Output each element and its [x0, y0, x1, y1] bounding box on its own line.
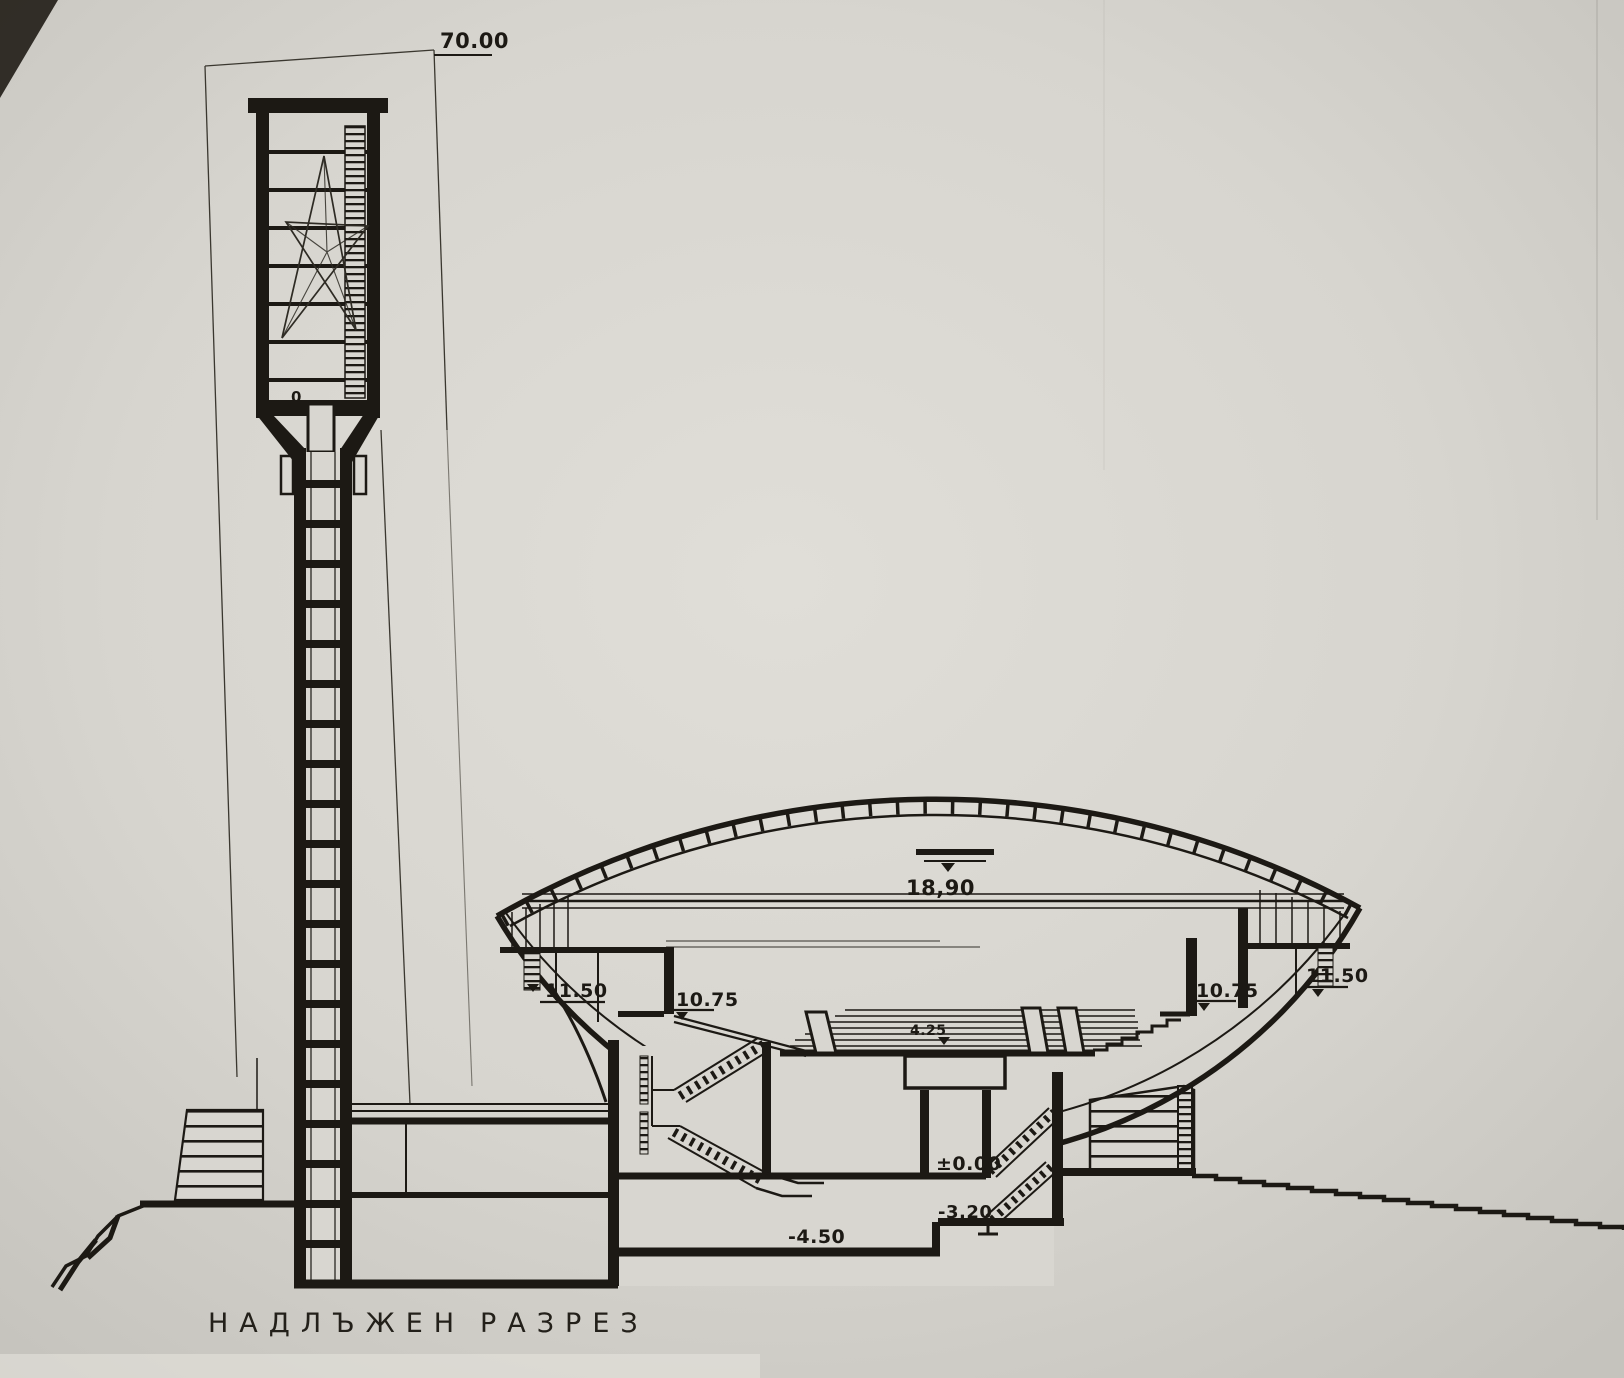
- tower-door: [308, 404, 334, 452]
- photographed-blueprint-page: 70.00 18,90 11.50 10.75 4.25 10.75 11.50…: [0, 0, 1624, 1378]
- label-basement-lower: -4.50: [788, 1226, 845, 1248]
- stage-platform: [905, 1056, 1005, 1088]
- label-tower-height: 70.00: [440, 29, 509, 53]
- label-hall-floor: 4.25: [910, 1023, 947, 1039]
- title-word-1: НАДЛЪЖЕН: [208, 1308, 465, 1339]
- label-gallery-left-lower: 10.75: [676, 989, 739, 1011]
- paper-bottom-edge: [0, 1354, 760, 1378]
- stairwell-wall: [762, 1042, 771, 1176]
- label-ground-zero: ±0.00: [936, 1153, 1001, 1175]
- base-wall-left: [608, 1040, 619, 1286]
- seat-rows: [790, 1010, 1142, 1046]
- tower-wall-right: [367, 100, 380, 418]
- exterior-staircase-left: [175, 1110, 263, 1200]
- label-gallery-right-lower: 10.75: [1196, 980, 1259, 1002]
- shaft-wall-left: [294, 448, 306, 1284]
- exterior-stair-right: [1178, 1086, 1192, 1172]
- label-tower-door: 0: [291, 388, 302, 406]
- stage-column-left: [920, 1090, 929, 1178]
- tower-stair-shaft: [345, 126, 365, 398]
- gallery-wall-left: [664, 950, 674, 1014]
- base-wall-right: [1052, 1072, 1063, 1224]
- title-word-2: РАЗРЕЗ: [480, 1308, 649, 1339]
- drawing-title: НАДЛЪЖЕН РАЗРЕЗ: [208, 1308, 649, 1339]
- label-dome-top: 18,90: [906, 876, 975, 900]
- shaft-wall-right: [340, 448, 352, 1284]
- tower-wall-left: [256, 100, 269, 418]
- label-gallery-right-upper: 11.50: [1306, 965, 1369, 987]
- label-basement-upper: -3.20: [938, 1202, 992, 1223]
- label-gallery-left-upper: 11.50: [545, 980, 608, 1002]
- stairwell-hatch-lower: [640, 1112, 648, 1154]
- gallery-wall-right: [1186, 938, 1197, 1016]
- longitudinal-section-drawing: 70.00 18,90 11.50 10.75 4.25 10.75 11.50…: [0, 0, 1624, 1378]
- stairwell-hatch-upper: [640, 1056, 648, 1104]
